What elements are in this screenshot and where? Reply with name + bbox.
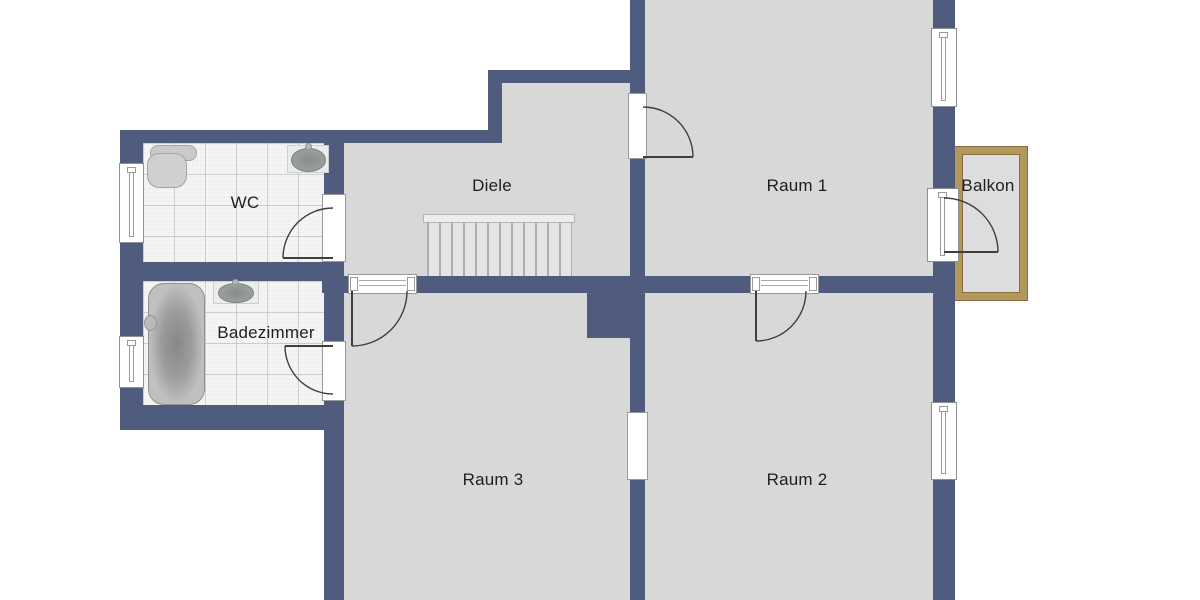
raum2-label: Raum 2 bbox=[767, 470, 828, 490]
badezimmer-sink-faucet-icon bbox=[232, 279, 239, 285]
raum1-label: Raum 1 bbox=[767, 176, 828, 196]
raum3-raum2-passage bbox=[627, 412, 648, 480]
raum2-door-sill-line bbox=[761, 280, 808, 286]
wall-step-horizontal bbox=[488, 70, 645, 83]
wc-window bbox=[119, 163, 144, 243]
badezimmer-sink-icon bbox=[218, 283, 254, 303]
wc-sink-icon bbox=[291, 148, 326, 172]
badezimmer-window bbox=[119, 336, 144, 388]
wall-pillar bbox=[587, 293, 631, 338]
stairs-rail bbox=[423, 214, 575, 223]
wc-door-opening bbox=[322, 194, 346, 262]
wall-center-vertical bbox=[630, 0, 645, 600]
diele-floor-notch bbox=[488, 83, 630, 143]
toilet-bowl-icon bbox=[147, 153, 187, 188]
diele-label: Diele bbox=[472, 176, 512, 196]
wc-sink-faucet-icon bbox=[305, 143, 312, 150]
stairs-treads bbox=[427, 223, 572, 276]
bathtub-icon bbox=[148, 283, 205, 405]
floor-plan: WC Badezimmer Diele Raum 1 Raum 2 Raum 3… bbox=[0, 0, 1200, 600]
balkon-door-opening bbox=[927, 188, 959, 262]
bathtub-faucet-icon bbox=[144, 315, 157, 331]
raum2-floor bbox=[645, 293, 933, 600]
raum2-window bbox=[931, 402, 957, 480]
balkon-deck bbox=[955, 147, 1027, 300]
wall-wc-bad-divider bbox=[120, 262, 344, 281]
raum1-window bbox=[931, 28, 957, 107]
raum3-floor bbox=[344, 293, 630, 600]
raum1-floor bbox=[645, 0, 933, 276]
raum2-door-sill bbox=[750, 274, 819, 294]
badezimmer-label: Badezimmer bbox=[217, 323, 314, 343]
raum1-door-opening bbox=[628, 93, 647, 159]
badezimmer-door-opening bbox=[322, 341, 346, 401]
wall-bottom-left bbox=[120, 405, 344, 430]
wc-label: WC bbox=[231, 193, 260, 213]
balkon-label: Balkon bbox=[961, 176, 1014, 196]
raum3-label: Raum 3 bbox=[463, 470, 524, 490]
raum3-door-sill bbox=[348, 274, 417, 294]
wall-top-left bbox=[120, 130, 502, 143]
raum3-door-sill-line bbox=[359, 280, 406, 286]
